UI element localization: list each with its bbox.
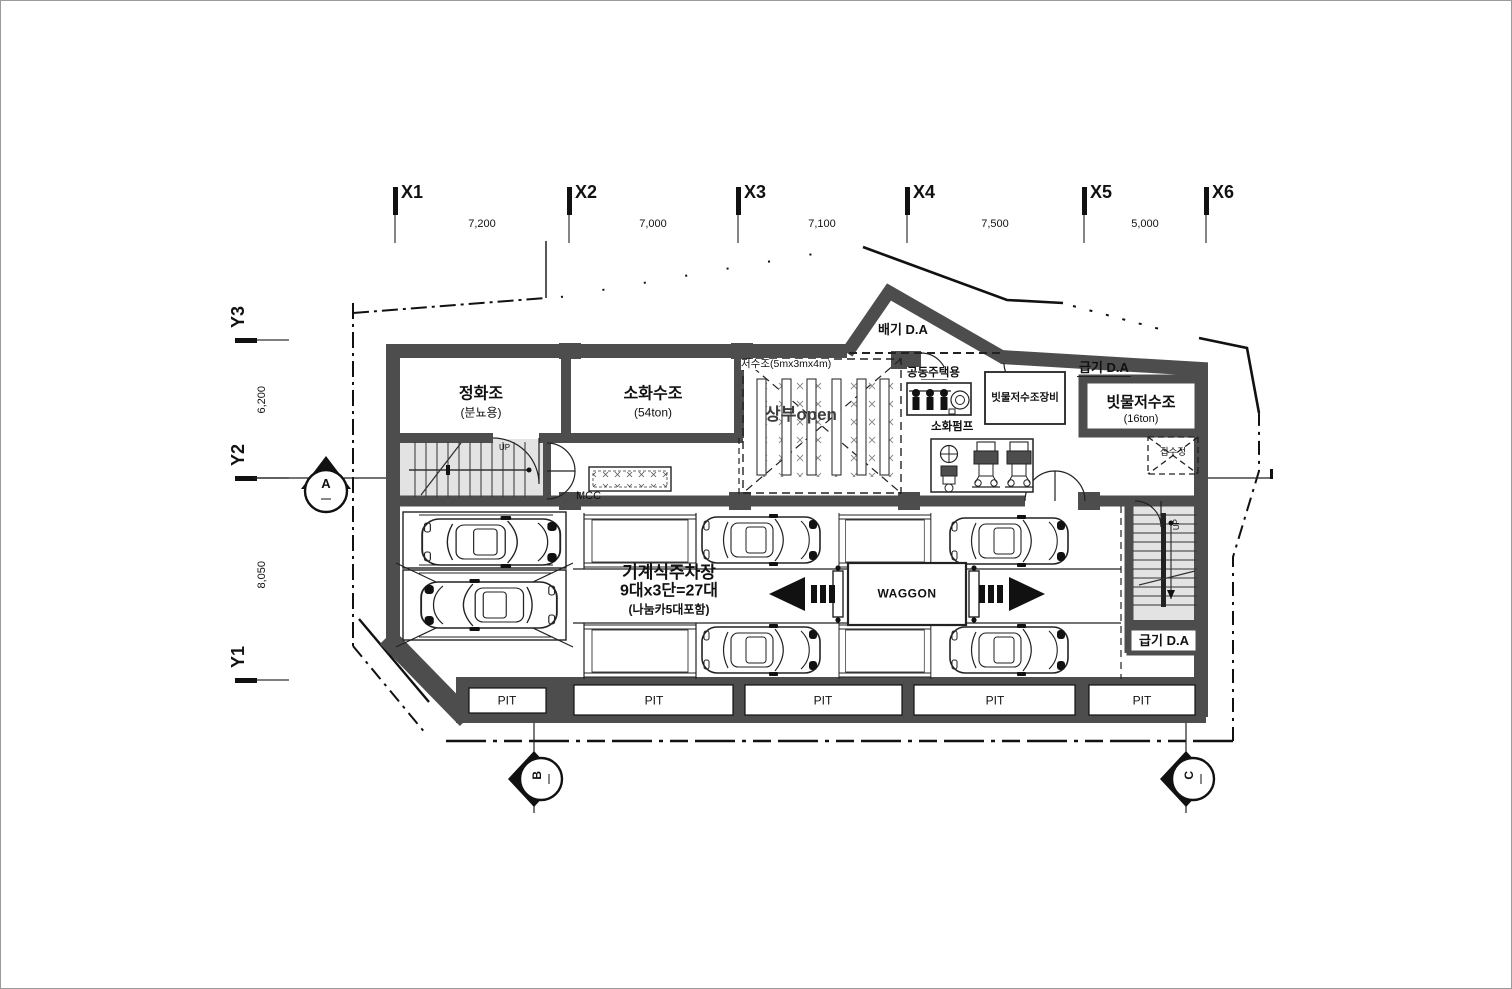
room-firetank-name: 소화수조 — [624, 387, 683, 404]
dim-x2-x3: 7,000 — [639, 219, 667, 231]
label-up-right: UP — [1173, 519, 1181, 530]
room-septic-sub: (분뇨용) — [460, 407, 501, 420]
reservoir-open-zone — [739, 359, 901, 498]
grid-label-y2: Y2 — [229, 444, 248, 466]
pit-label-4: PIT — [986, 695, 1005, 708]
label-apartment-use: 공동주택용 — [907, 367, 960, 379]
label-exhaust-da: 배기 D.A — [878, 323, 928, 337]
floorplan-drawing — [1, 1, 1511, 988]
pit-label-3: PIT — [814, 695, 833, 708]
car-left-top — [422, 516, 560, 568]
grid-label-x2: X2 — [575, 183, 597, 202]
floorplan-sheet: X1 X2 X3 X4 X5 X6 7,200 7,000 7,100 7,50… — [0, 0, 1512, 989]
apartment-pump-skid — [907, 383, 971, 415]
grid-label-x6: X6 — [1212, 183, 1234, 202]
grid-label-x3: X3 — [744, 183, 766, 202]
parking-note-line3: (나눔카5대포함) — [629, 604, 710, 617]
x-grid-ticks — [393, 187, 1209, 243]
car-left-bottom — [421, 579, 557, 631]
label-sump: 집수정 — [1160, 448, 1186, 458]
room-raintank-name: 빗물저수조 — [1106, 395, 1175, 411]
room-firetank-sub: (54ton) — [634, 407, 672, 420]
waggon-rail-right — [969, 565, 979, 622]
pit-label-1: PIT — [498, 695, 517, 708]
marker-a-label: A — [321, 477, 330, 491]
dim-x4-x5: 7,500 — [981, 219, 1009, 231]
grid-label-y1: Y1 — [229, 646, 248, 668]
pit-label-2: PIT — [645, 695, 664, 708]
parking-row-top — [584, 513, 1068, 569]
marker-c-label: C — [1183, 771, 1196, 780]
dim-x3-x4: 7,100 — [808, 219, 836, 231]
dim-x1-x2: 7,200 — [468, 219, 496, 231]
parking-note-line2: 9대x3단=27대 — [620, 584, 718, 601]
dim-y3-y2: 6,200 — [257, 386, 269, 414]
label-waggon: WAGGON — [878, 588, 937, 601]
label-up-left: UP — [499, 444, 510, 452]
label-reservoir: 저수조(5mx3mx4m) — [741, 359, 831, 370]
pit-label-5: PIT — [1133, 695, 1152, 708]
dim-x5-x6: 5,000 — [1131, 219, 1159, 231]
mcc-panel — [589, 467, 671, 491]
grid-label-x1: X1 — [401, 183, 423, 202]
grid-label-y3: Y3 — [229, 306, 248, 328]
label-fire-pump: 소화펌프 — [931, 421, 973, 433]
label-supply-da-bottom: 급기 D.A — [1139, 634, 1189, 648]
label-mcc: MCC — [576, 491, 601, 503]
room-raintank-sub: (16ton) — [1124, 414, 1159, 426]
label-open-above: 상부open — [765, 406, 837, 424]
parking-row-bottom — [584, 623, 1068, 679]
grid-label-x5: X5 — [1090, 183, 1112, 202]
direction-arrow-right — [979, 577, 1045, 611]
fire-pump-unit — [931, 439, 1033, 492]
room-septic-name: 정화조 — [459, 387, 503, 404]
dim-y2-y1: 8,050 — [257, 561, 269, 589]
parking-note-line1: 기계식주차장 — [622, 564, 716, 582]
marker-b-label: B — [531, 771, 544, 780]
grid-label-x4: X4 — [913, 183, 935, 202]
label-rain-equipment: 빗물저수조장비 — [991, 392, 1059, 403]
direction-arrow-left — [769, 577, 835, 611]
label-supply-da-top: 급기 D.A — [1077, 361, 1131, 377]
